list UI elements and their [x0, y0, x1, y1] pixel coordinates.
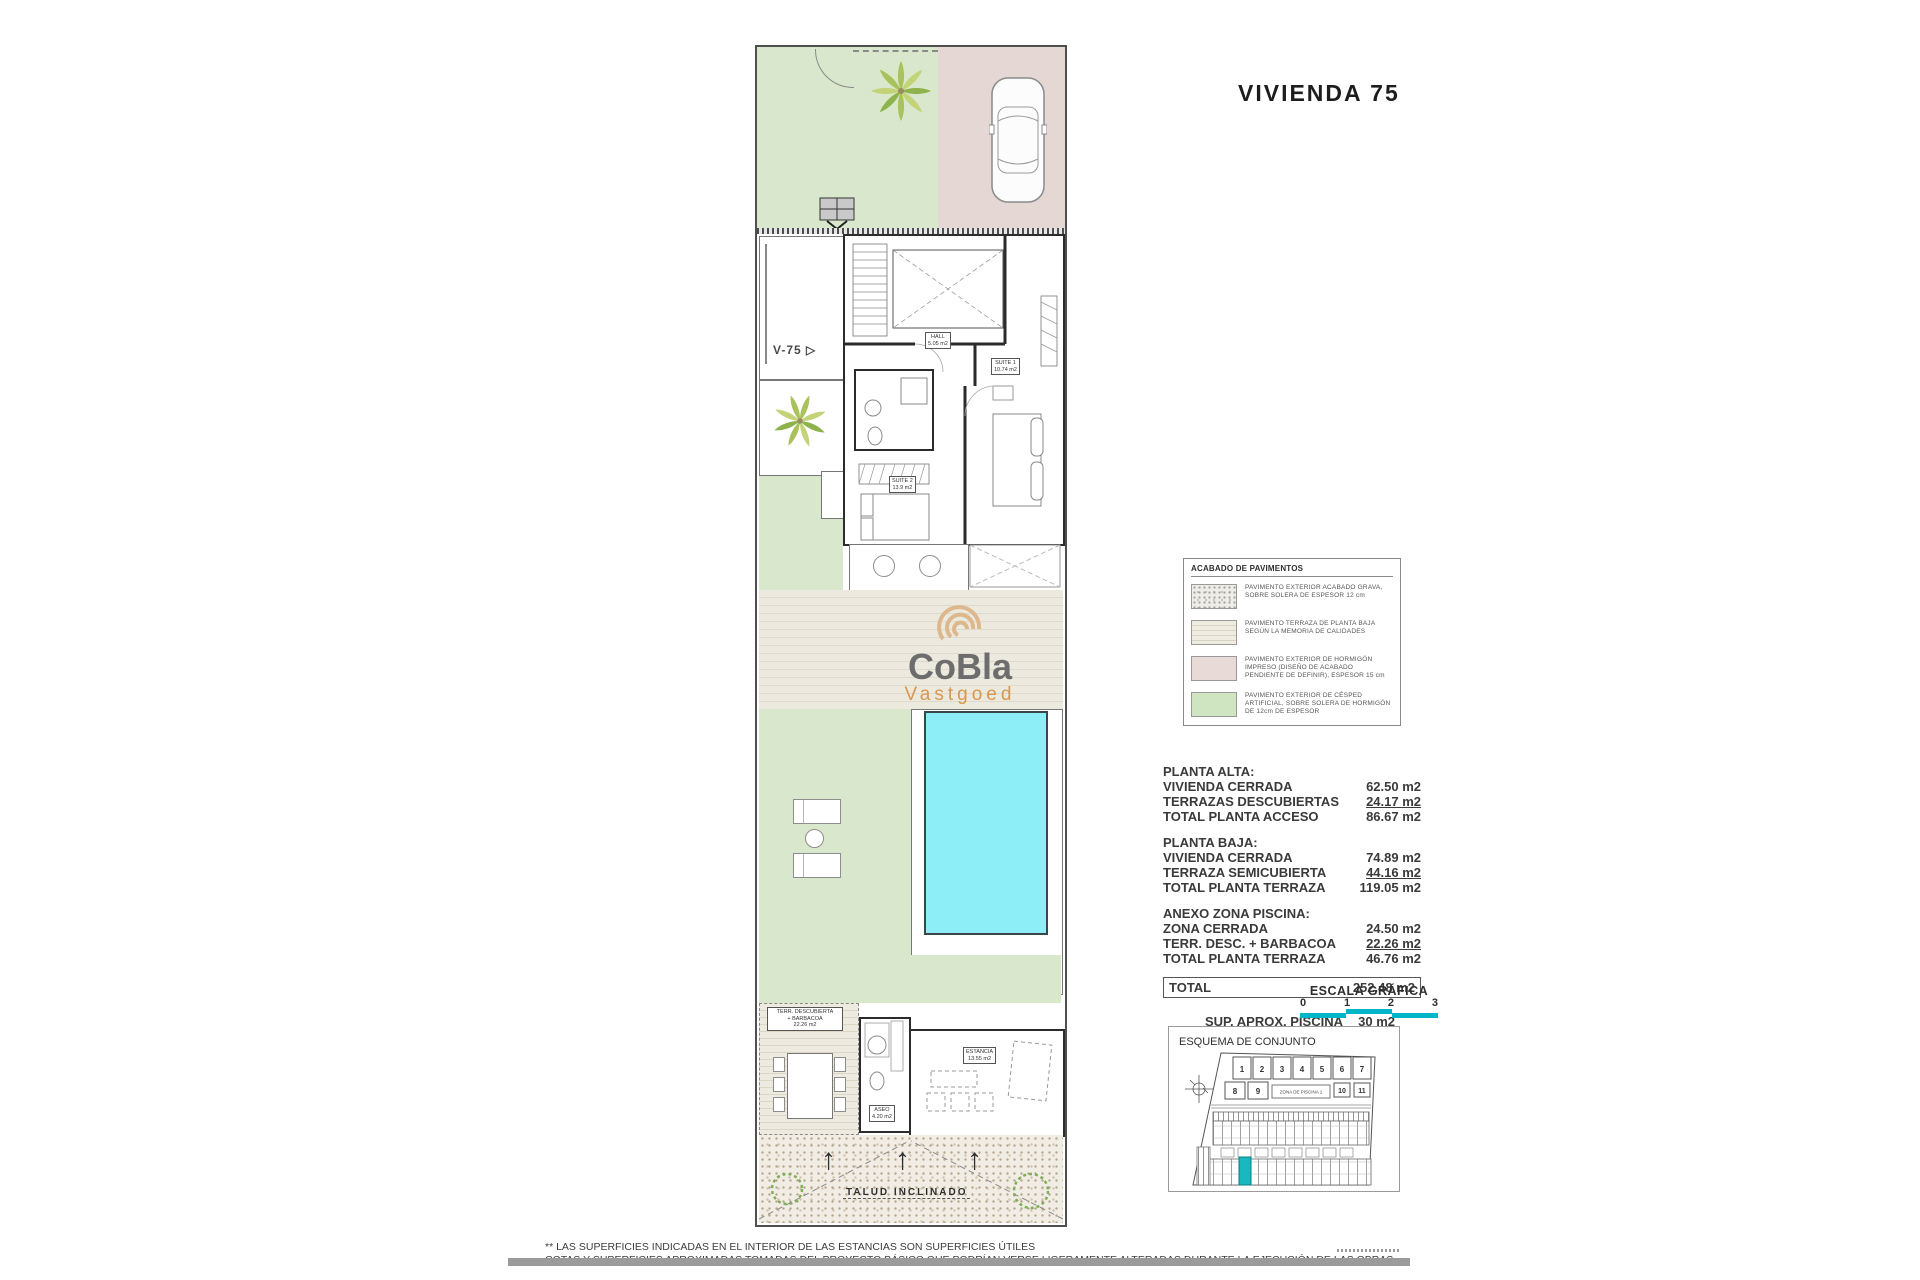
slope-arrow-icon: ↑	[821, 1145, 836, 1175]
scale-ticks: 0 1 2 3	[1300, 998, 1438, 1009]
group-title: PLANTA BAJA:	[1163, 835, 1421, 850]
entry-gate-icon	[819, 197, 855, 230]
house-interior-drawing	[845, 236, 1063, 544]
plot-number: 8	[1233, 1087, 1238, 1096]
row-value: 62.50 m2	[1366, 779, 1421, 794]
swimming-pool	[924, 711, 1048, 935]
watermark-subtitle: Vastgoed	[875, 684, 1045, 706]
dining-chair	[834, 1077, 846, 1092]
esquema-de-conjunto: ESQUEMA DE CONJUNTO 1 2 3 4	[1168, 1026, 1400, 1192]
group-title: PLANTA ALTA:	[1163, 764, 1421, 779]
scale-tick: 1	[1344, 998, 1350, 1009]
estancia-area: 13.55 m2	[966, 1056, 993, 1063]
parking-row	[1221, 1148, 1353, 1157]
sun-lounger	[793, 799, 841, 824]
talud-slope: ↑ ↑ ↑ TALUD INCLINADO	[759, 1135, 1063, 1223]
row-value: 74.89 m2	[1366, 850, 1421, 865]
aseo-name: ASEO	[872, 1107, 892, 1114]
row-value: 24.17 m2	[1366, 794, 1421, 809]
aseo-room: ASEO 4.20 m2	[859, 1017, 911, 1133]
table-row: TOTAL PLANTA ACCESO 86.67 m2	[1163, 809, 1421, 824]
grava-swatch	[1191, 584, 1237, 609]
site-plan: V-75 ▷	[755, 45, 1067, 1227]
highlighted-plot-75	[1239, 1157, 1251, 1185]
aseo-area: 4.20 m2	[872, 1114, 892, 1121]
sun-lounger	[793, 853, 841, 878]
areas-table: PLANTA ALTA: VIVIENDA CERRADA 62.50 m2 T…	[1163, 764, 1421, 1069]
row-label: VIVIENDA CERRADA	[1163, 779, 1293, 794]
estancia-name: ESTANCIA	[966, 1049, 993, 1056]
esquema-title: ESQUEMA DE CONJUNTO	[1179, 1036, 1316, 1048]
side-table	[805, 829, 824, 848]
table-row: TERR. DESC. + BARBACOA 22.26 m2	[1163, 936, 1421, 951]
slope-arrow-icon: ↑	[895, 1145, 910, 1175]
dining-chair	[773, 1097, 785, 1112]
unit-label-v75: V-75 ▷	[773, 343, 816, 357]
plot-number: 7	[1360, 1065, 1365, 1074]
plot-number: 5	[1320, 1065, 1325, 1074]
estancia-room: ESTANCIA 13.55 m2	[909, 1029, 1065, 1137]
table-row: TOTAL PLANTA TERRAZA 46.76 m2	[1163, 951, 1421, 966]
terraza-swatch	[1191, 620, 1237, 645]
pavement-legend: ACABADO DE PAVIMENTOS PAVIMENTO EXTERIOR…	[1183, 558, 1401, 726]
row-value: 119.05 m2	[1360, 880, 1421, 895]
estancia-furniture	[911, 1031, 1059, 1131]
anexo-piscina-group: ANEXO ZONA PISCINA: ZONA CERRADA 24.50 m…	[1163, 906, 1421, 966]
group-title: ANEXO ZONA PISCINA:	[1163, 906, 1421, 921]
table-row: TERRAZA SEMICUBIERTA 44.16 m2	[1163, 865, 1421, 880]
watermark-name: CoBla	[875, 650, 1045, 684]
palm-tree-icon	[771, 392, 829, 450]
compass-icon	[1185, 1075, 1213, 1103]
plot-number: 1	[1240, 1065, 1245, 1074]
terrace-railing	[765, 244, 767, 364]
zona-piscina-label: ZONA DE PISCINA 1	[1280, 1090, 1323, 1095]
slope-arrow-icon: ↑	[967, 1145, 982, 1175]
plot-number: 9	[1256, 1087, 1261, 1096]
room-label-estancia: ESTANCIA 13.55 m2	[963, 1047, 996, 1064]
table-row: VIVIENDA CERRADA 62.50 m2	[1163, 779, 1421, 794]
unit-strip-upper	[1213, 1121, 1369, 1145]
scale-title: ESCALA GRÁFICA	[1300, 984, 1438, 998]
plot-number: 4	[1300, 1065, 1305, 1074]
cobla-swirl-icon	[931, 599, 989, 645]
legend-text: PAVIMENTO EXTERIOR ACABADO GRAVA, SOBRE …	[1245, 584, 1393, 600]
row-label: VIVIENDA CERRADA	[1163, 850, 1293, 865]
row-label: TOTAL PLANTA ACCESO	[1163, 809, 1319, 824]
suite2-name: SUITE 2	[892, 478, 913, 485]
semicovered-terrace	[849, 544, 969, 592]
fine-print-marks	[1337, 1249, 1399, 1252]
upper-terrace	[759, 236, 845, 380]
talud-lines	[759, 1135, 1063, 1223]
terrace-chair	[919, 555, 941, 577]
room-label-hall: HALL 5.05 m2	[925, 332, 951, 349]
legend-item: PAVIMENTO TERRAZA DE PLANTA BAJA SEGÚN L…	[1191, 620, 1393, 645]
page-title: VIVIENDA 75	[1238, 80, 1400, 107]
row-label: TERRAZAS DESCUBIERTAS	[1163, 794, 1339, 809]
legend-item: PAVIMENTO EXTERIOR DE CÉSPED ARTIFICIAL,…	[1191, 692, 1393, 717]
palm-tree-icon	[869, 59, 933, 123]
row-value: 46.76 m2	[1366, 951, 1421, 966]
dining-chair	[773, 1077, 785, 1092]
watermark-logo: CoBla Vastgoed	[875, 599, 1045, 706]
footer-line-1: ** LAS SUPERFICIES INDICADAS EN EL INTER…	[545, 1241, 1393, 1254]
table-row: VIVIENDA CERRADA 74.89 m2	[1163, 850, 1421, 865]
hall-area: 5.05 m2	[928, 341, 948, 348]
plot-number: 10	[1338, 1088, 1346, 1095]
scale-tick: 3	[1432, 998, 1438, 1009]
row-value: 44.16 m2	[1366, 865, 1421, 880]
unit-strip-lower	[1207, 1159, 1371, 1185]
row-label: TERRAZA SEMICUBIERTA	[1163, 865, 1326, 880]
plot-number: 3	[1280, 1065, 1285, 1074]
footer-divider-bar	[508, 1258, 1410, 1266]
plot-number: 2	[1260, 1065, 1265, 1074]
pergola-crossed	[969, 544, 1061, 588]
row-value: 24.50 m2	[1366, 921, 1421, 936]
dining-table	[787, 1053, 833, 1119]
graphic-scale: ESCALA GRÁFICA 0 1 2 3	[1300, 984, 1438, 1019]
legend-text: PAVIMENTO EXTERIOR DE CÉSPED ARTIFICIAL,…	[1245, 692, 1393, 716]
suite1-area: 10.74 m2	[994, 367, 1017, 374]
terrace-label-3: 22.26 m2	[770, 1022, 840, 1029]
dining-chair	[773, 1057, 785, 1072]
car-icon	[989, 75, 1047, 205]
total-label: TOTAL	[1169, 980, 1211, 995]
room-label-suite1: SUITE 1 10.74 m2	[991, 358, 1020, 375]
legend-text: PAVIMENTO TERRAZA DE PLANTA BAJA SEGÚN L…	[1245, 620, 1393, 636]
planta-baja-group: PLANTA BAJA: VIVIENDA CERRADA 74.89 m2 T…	[1163, 835, 1421, 895]
unit-strip-header	[1213, 1112, 1369, 1121]
row-label: ZONA CERRADA	[1163, 921, 1268, 936]
house-footprint: HALL 5.05 m2 SUITE 1 10.74 m2 SUITE 2 13…	[843, 234, 1065, 546]
row-label: TERR. DESC. + BARBACOA	[1163, 936, 1336, 951]
row-label: TOTAL PLANTA TERRAZA	[1163, 951, 1326, 966]
scale-tick: 0	[1300, 998, 1306, 1009]
table-row: ZONA CERRADA 24.50 m2	[1163, 921, 1421, 936]
suite2-area: 13.9 m2	[892, 485, 913, 492]
row-label: TOTAL PLANTA TERRAZA	[1163, 880, 1326, 895]
cesped-swatch	[1191, 692, 1237, 717]
scale-bar	[1300, 1009, 1438, 1019]
lower-lawn	[759, 955, 1061, 1003]
plot-number: 6	[1340, 1065, 1345, 1074]
dining-chair	[834, 1057, 846, 1072]
v75-text: V-75	[773, 343, 802, 357]
terrace-label: TERR. DESCUBIERTA + BARBACOA 22.26 m2	[767, 1007, 843, 1031]
legend-item: PAVIMENTO EXTERIOR ACABADO GRAVA, SOBRE …	[1191, 584, 1393, 609]
plot-number: 11	[1358, 1088, 1366, 1095]
plan-sheet: V-75 ▷	[0, 0, 1920, 1280]
site-overview-drawing: ESQUEMA DE CONJUNTO 1 2 3 4	[1169, 1027, 1399, 1191]
legend-text: PAVIMENTO EXTERIOR DE HORMIGÓN IMPRESO (…	[1245, 656, 1393, 680]
left-structure	[1197, 1147, 1210, 1185]
terrace-chair	[873, 555, 895, 577]
room-label-aseo: ASEO 4.20 m2	[869, 1105, 895, 1122]
planta-alta-group: PLANTA ALTA: VIVIENDA CERRADA 62.50 m2 T…	[1163, 764, 1421, 824]
dining-chair	[834, 1097, 846, 1112]
row-value: 22.26 m2	[1366, 936, 1421, 951]
room-label-suite2: SUITE 2 13.9 m2	[889, 476, 916, 493]
table-row: TOTAL PLANTA TERRAZA 119.05 m2	[1163, 880, 1421, 895]
row-value: 86.67 m2	[1366, 809, 1421, 824]
table-row: TERRAZAS DESCUBIERTAS 24.17 m2	[1163, 794, 1421, 809]
legend-title: ACABADO DE PAVIMENTOS	[1191, 564, 1393, 577]
legend-item: PAVIMENTO EXTERIOR DE HORMIGÓN IMPRESO (…	[1191, 656, 1393, 681]
hormigon-swatch	[1191, 656, 1237, 681]
boundary-dashed-line	[853, 50, 938, 52]
scale-tick: 2	[1388, 998, 1394, 1009]
pool-lawn	[759, 709, 911, 955]
suite1-name: SUITE 1	[994, 360, 1017, 367]
talud-label: TALUD INCLINADO	[843, 1187, 970, 1199]
terrace-label-1: TERR. DESCUBIERTA	[770, 1009, 840, 1016]
